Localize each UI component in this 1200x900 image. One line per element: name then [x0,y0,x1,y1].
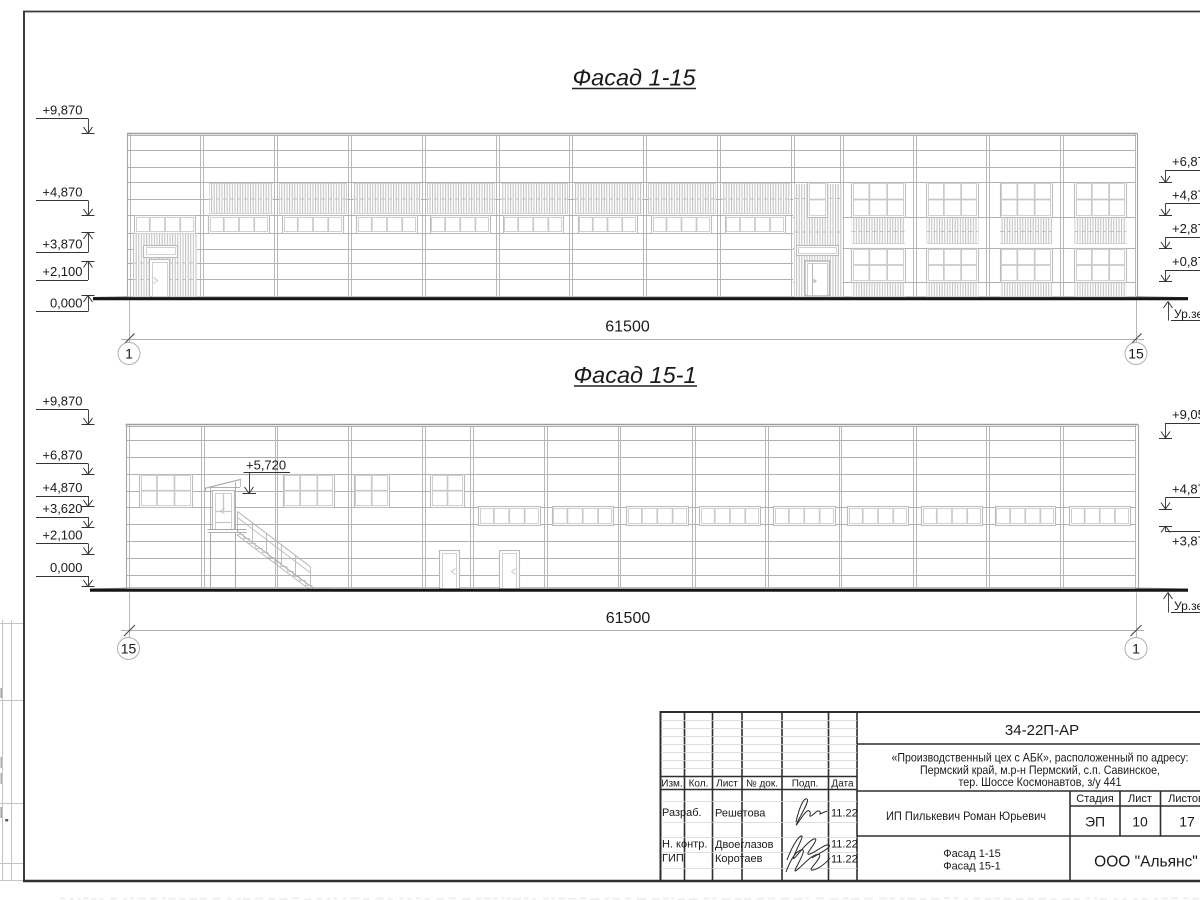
svg-text:11.22: 11.22 [831,839,858,851]
svg-text:Дата: Дата [831,779,854,790]
svg-text:+9,870: +9,870 [42,394,82,409]
svg-text:Ур.земли: Ур.земли [1174,307,1200,321]
svg-text:61500: 61500 [606,610,651,627]
svg-text:17: 17 [1179,814,1195,830]
svg-text:+4,870: +4,870 [42,480,82,495]
svg-text:+4,870: +4,870 [1172,188,1200,203]
svg-text:15: 15 [121,641,137,657]
svg-text:+4,870: +4,870 [1172,482,1200,497]
svg-text:ЭП: ЭП [1085,814,1105,830]
svg-text:Фасад 1-15: Фасад 1-15 [572,65,696,91]
svg-text:+6,870: +6,870 [42,448,82,463]
svg-text:+3,870: +3,870 [1172,534,1200,549]
svg-text:Стадия: Стадия [1076,793,1114,805]
svg-text:+2,870: +2,870 [1172,221,1200,236]
svg-text:тер. Шоссе Космонавтов, з/у 44: тер. Шоссе Космонавтов, з/у 441 [959,775,1122,789]
svg-text:34-22П-АР: 34-22П-АР [1005,722,1079,739]
svg-text:Решетова: Решетова [715,808,766,820]
svg-text:+5,720: +5,720 [246,458,286,473]
svg-text:+2,100: +2,100 [42,528,82,543]
svg-text:Н. контр.: Н. контр. [662,839,707,851]
svg-text:Фасад 1-15: Фасад 1-15 [943,848,1001,860]
svg-text:Кол.: Кол. [689,779,709,790]
svg-text:+3,870: +3,870 [42,237,82,252]
svg-text:11.22: 11.22 [831,854,858,866]
svg-text:+3,620: +3,620 [42,501,82,516]
svg-text:ИП Пилькевич Роман Юрьевич: ИП Пилькевич Роман Юрьевич [886,809,1046,823]
svg-text:+9,050: +9,050 [1172,407,1200,422]
svg-text:Подп.: Подп. [792,779,819,790]
svg-text:Коротаев: Коротаев [715,853,763,865]
svg-text:15: 15 [1128,346,1144,362]
svg-text:Фасад 15-1: Фасад 15-1 [943,861,1001,873]
svg-text:Разраб.: Разраб. [662,807,702,819]
svg-text:Лист: Лист [1128,793,1152,805]
svg-text:+6,870: +6,870 [1172,154,1200,169]
svg-text:+2,100: +2,100 [42,264,82,279]
svg-text:ГИП: ГИП [662,853,684,865]
svg-text:0,000: 0,000 [50,296,83,311]
svg-text:Лист: Лист [716,779,738,790]
svg-text:Двоеглазов: Двоеглазов [715,839,774,851]
svg-text:+9,870: +9,870 [42,103,82,118]
svg-text:0,000: 0,000 [50,560,83,575]
svg-text:+4,870: +4,870 [42,185,82,200]
svg-text:Фасад 15-1: Фасад 15-1 [573,362,696,388]
svg-text:11.22: 11.22 [831,808,858,820]
svg-text:1: 1 [1132,641,1140,657]
svg-text:1: 1 [125,346,133,362]
svg-text:10: 10 [1132,814,1148,830]
svg-text:Ур.земли: Ур.земли [1174,599,1200,613]
svg-text:Изм.: Изм. [661,779,682,790]
svg-text:ООО "Альянс": ООО "Альянс" [1094,854,1198,871]
svg-text:Листов: Листов [1168,793,1200,805]
svg-text:№ док.: № док. [746,779,778,790]
svg-text:61500: 61500 [605,319,650,336]
svg-text:+0,870: +0,870 [1172,254,1200,269]
